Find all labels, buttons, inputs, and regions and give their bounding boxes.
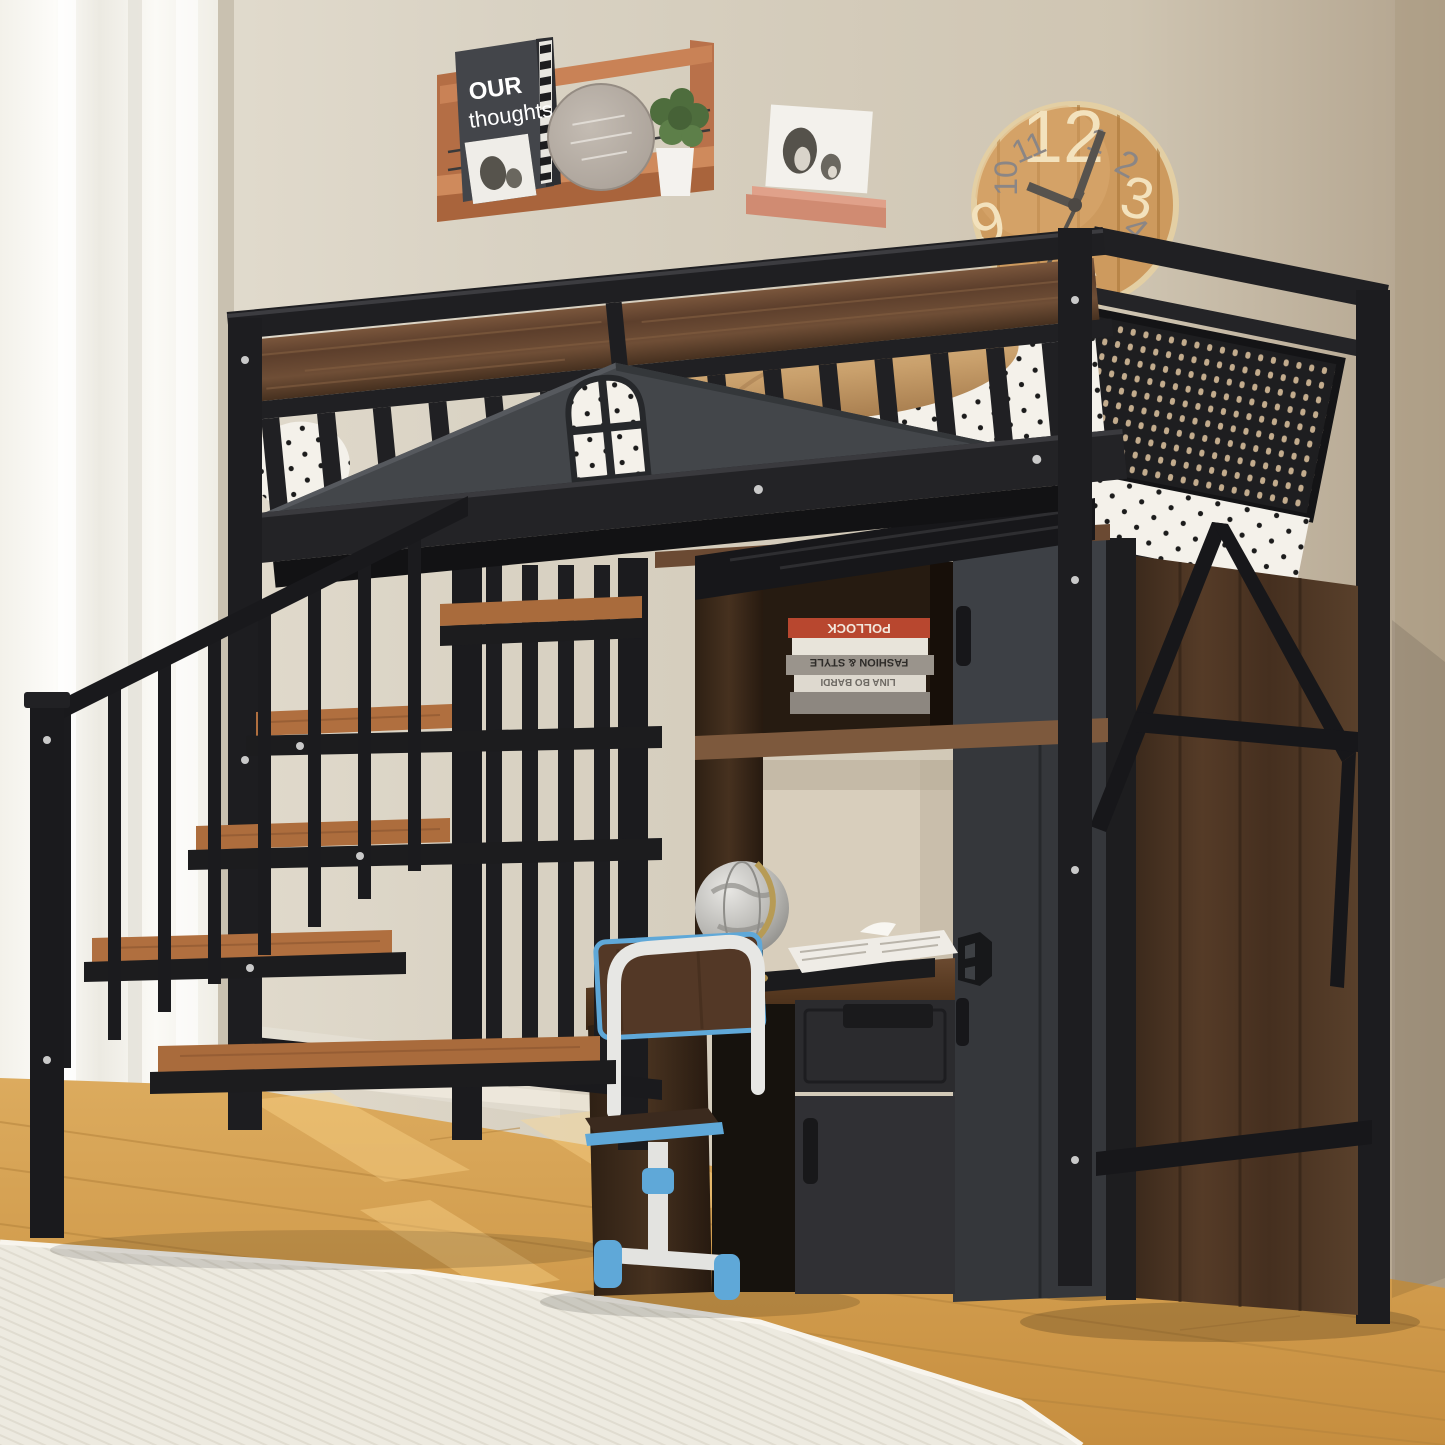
room-illustration: OUR thoughts [0, 0, 1445, 1445]
room-photo: OUR thoughts [0, 0, 1445, 1445]
hedgehog-card [765, 104, 872, 193]
clock-center-cap [1068, 198, 1082, 212]
newel-post-cap [24, 692, 70, 708]
hutch-compartment-shadow [930, 562, 953, 734]
chair-column [648, 1142, 668, 1252]
book-white [792, 638, 928, 655]
decor-plate [548, 84, 654, 190]
drawer-handle-recess [843, 1004, 933, 1028]
book-gray-title: FASHION & STYLE [810, 656, 908, 668]
stair-newel-post [30, 700, 64, 1238]
book-gray-2 [790, 692, 930, 714]
wardrobe [953, 522, 1372, 1315]
rear-right-leg [1356, 290, 1390, 1324]
plant-pot [656, 148, 694, 196]
decor-book: OUR thoughts [455, 37, 561, 204]
wardrobe-recess-strip [1106, 538, 1136, 1300]
cabinet-door-handle [803, 1118, 818, 1184]
book-stack: POLLOCK FASHION & STYLE LINA BO BARDI [786, 618, 934, 714]
wardrobe-upper-door-handle [956, 606, 971, 666]
curtain-fold [128, 0, 142, 1258]
chair-foot-right [714, 1254, 740, 1300]
wall-shadow [1392, 620, 1445, 1298]
book-white-2-title: LINA BO BARDI [820, 676, 895, 687]
chair-foot-left [594, 1240, 622, 1288]
drawer-unit [795, 1000, 955, 1294]
book-cover-photo [465, 134, 537, 204]
desk-cabinet-door [795, 1096, 955, 1294]
chair-height-adjuster [642, 1168, 674, 1194]
front-right-leg [1058, 228, 1092, 1286]
book-red-title: POLLOCK [827, 621, 891, 636]
gable-window [565, 375, 648, 482]
wardrobe-slot-handle [956, 998, 969, 1046]
